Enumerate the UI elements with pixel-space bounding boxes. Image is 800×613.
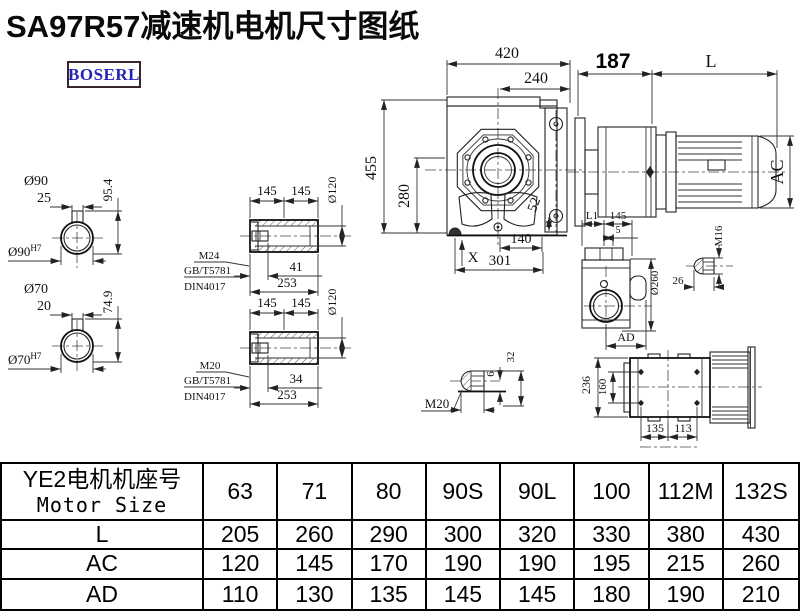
dim-6: 6 xyxy=(485,371,497,377)
hollow-shaft-section-m20: 145 145 Ø120 M20 GB/T5781 DIN4017 34 253 xyxy=(184,289,352,408)
dim-145c: 145 xyxy=(257,295,277,310)
dim-20: 20 xyxy=(37,299,51,314)
cell: 145 xyxy=(278,550,352,579)
plug-detail-m20: 6 32 M20 xyxy=(421,352,524,414)
label-m16: M16 xyxy=(713,225,725,246)
cell: 170 xyxy=(353,550,427,579)
dim-x: X xyxy=(468,250,479,266)
dim-236: 236 xyxy=(579,376,593,394)
motor-side-view: AC 187 L xyxy=(568,50,794,226)
label-din4017-b: DIN4017 xyxy=(184,391,226,403)
dim-74-9: 74.9 xyxy=(100,291,115,314)
technical-drawing: 420 240 455 280 52 X 140 301 xyxy=(0,0,800,462)
gearbox-front-view: 420 240 455 280 52 X 140 301 xyxy=(363,45,585,274)
dim-d260: Ø260 xyxy=(649,270,661,295)
cell: 130 xyxy=(278,580,352,609)
dim-26: 26 xyxy=(673,275,685,287)
table-header-motor-size: YE2电机机座号 Motor Size xyxy=(2,464,204,521)
cell: 145 xyxy=(427,580,501,609)
dim-253b: 253 xyxy=(277,387,297,402)
col-header: 100 xyxy=(575,464,649,521)
dim-d70h7: Ø70H7 xyxy=(8,351,42,367)
label-din4017-a: DIN4017 xyxy=(184,281,226,293)
col-header: 90L xyxy=(501,464,575,521)
dim-41: 41 xyxy=(290,259,303,274)
gearbox-side-view: L1 145 5 Ø260 AD xyxy=(582,210,661,350)
cell: 195 xyxy=(575,550,649,579)
table-header-cn: YE2电机机座号 xyxy=(23,466,181,494)
label-m20: M20 xyxy=(200,360,221,372)
cell: 210 xyxy=(724,580,798,609)
dim-145b: 145 xyxy=(291,183,311,198)
cell: 215 xyxy=(650,550,724,579)
cell: 180 xyxy=(575,580,649,609)
label-m20-detail: M20 xyxy=(425,396,450,411)
row-label-ad: AD xyxy=(2,580,204,609)
cell: 260 xyxy=(278,521,352,550)
plug-detail-m16: M16 26 xyxy=(673,225,734,291)
dim-160: 160 xyxy=(597,378,609,395)
dim-280: 280 xyxy=(396,184,413,208)
col-header: 112M xyxy=(650,464,724,521)
dim-d90: Ø90 xyxy=(24,174,48,189)
dim-l1: L1 xyxy=(586,210,598,222)
row-label-l: L xyxy=(2,521,204,550)
dim-95-4: 95.4 xyxy=(100,178,115,201)
dim-d120b: Ø120 xyxy=(325,289,339,316)
col-header: 80 xyxy=(353,464,427,521)
dim-l: L xyxy=(706,51,717,71)
dim-135: 135 xyxy=(646,421,664,435)
dim-455: 455 xyxy=(363,156,380,180)
shaft-end-view-70: Ø70 20 74.9 Ø70H7 xyxy=(8,282,122,374)
cell: 330 xyxy=(575,521,649,550)
dim-140: 140 xyxy=(511,232,532,247)
cell: 145 xyxy=(501,580,575,609)
dim-d70: Ø70 xyxy=(24,282,48,297)
label-gbt5781-a: GB/T5781 xyxy=(184,265,231,277)
dim-145a: 145 xyxy=(257,183,277,198)
cell: 190 xyxy=(501,550,575,579)
cell: 260 xyxy=(724,550,798,579)
dim-187: 187 xyxy=(595,50,630,73)
dim-240: 240 xyxy=(524,70,548,87)
cell: 205 xyxy=(204,521,278,550)
dim-253a: 253 xyxy=(277,275,297,290)
dim-ac: AC xyxy=(767,159,787,184)
col-header: 71 xyxy=(278,464,352,521)
cell: 190 xyxy=(427,550,501,579)
dim-ad: AD xyxy=(617,330,635,344)
dim-145d: 145 xyxy=(291,295,311,310)
dim-32: 32 xyxy=(505,352,517,363)
dim-420: 420 xyxy=(495,45,519,62)
cell: 320 xyxy=(501,521,575,550)
cell: 190 xyxy=(650,580,724,609)
hollow-shaft-section-m24: 145 145 Ø120 M24 GB/T5781 DIN4017 41 253 xyxy=(184,177,352,296)
label-m24: M24 xyxy=(199,250,220,262)
dim-25: 25 xyxy=(37,191,51,206)
cell: 135 xyxy=(353,580,427,609)
dim-34: 34 xyxy=(290,371,304,386)
motor-size-table: YE2电机机座号 Motor Size 63 71 80 90S 90L 100… xyxy=(0,462,800,611)
cell: 300 xyxy=(427,521,501,550)
col-header: 63 xyxy=(204,464,278,521)
row-label-ac: AC xyxy=(2,550,204,579)
label-gbt5781-b: GB/T5781 xyxy=(184,375,231,387)
cell: 110 xyxy=(204,580,278,609)
cell: 290 xyxy=(353,521,427,550)
gearbox-bottom-view: 236 160 135 113 xyxy=(579,347,762,447)
table-header-en: Motor Size xyxy=(37,493,167,517)
dim-301: 301 xyxy=(489,253,512,269)
cell: 380 xyxy=(650,521,724,550)
dim-145e: 145 xyxy=(610,210,627,222)
cell: 430 xyxy=(724,521,798,550)
dim-113: 113 xyxy=(674,421,692,435)
shaft-end-view-90: Ø90 25 95.4 Ø90H7 xyxy=(8,174,122,268)
dim-5: 5 xyxy=(616,225,621,236)
dim-d90h7: Ø90H7 xyxy=(8,243,42,259)
col-header: 132S xyxy=(724,464,798,521)
dim-d120a: Ø120 xyxy=(325,177,339,204)
dim-52: 52 xyxy=(525,196,544,214)
col-header: 90S xyxy=(427,464,501,521)
cell: 120 xyxy=(204,550,278,579)
